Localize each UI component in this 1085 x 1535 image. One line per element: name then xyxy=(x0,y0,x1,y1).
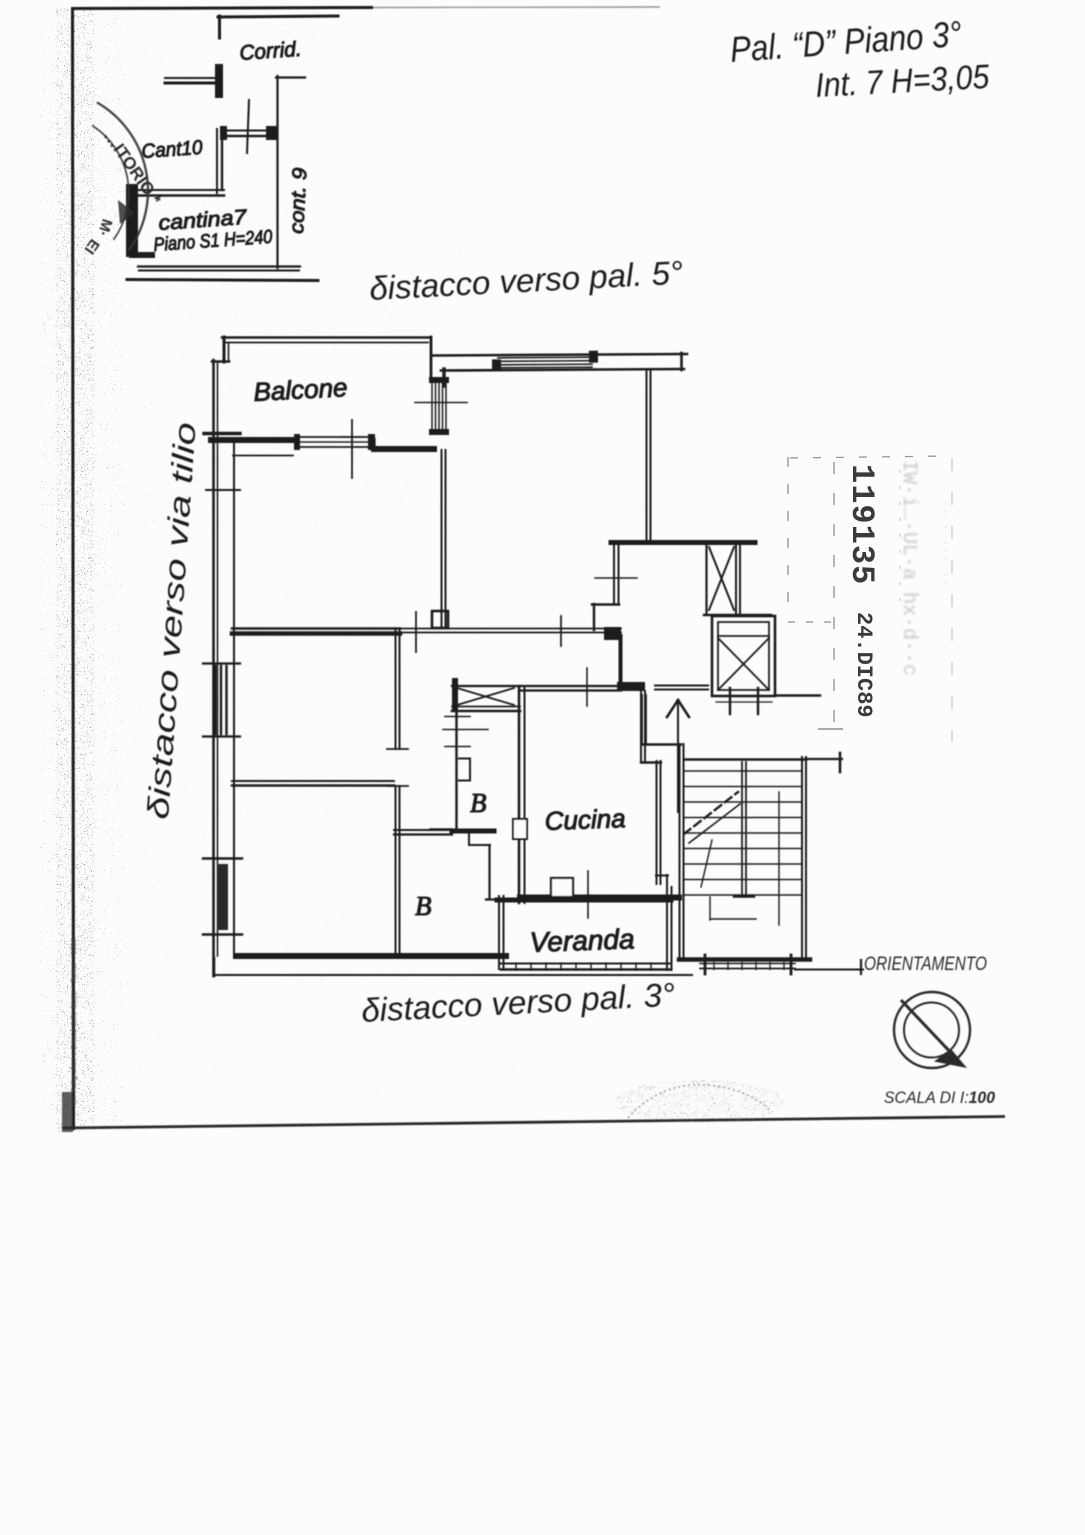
svg-text:B: B xyxy=(415,891,432,921)
svg-text:Ist. Poligrafico e Zecca dello: Ist. Poligrafico e Zecca dello Stato – R… xyxy=(69,938,78,1105)
svg-text:Cucina: Cucina xyxy=(544,803,626,836)
svg-text:Int. 7 H=3,05: Int. 7 H=3,05 xyxy=(814,58,990,105)
svg-text:119135: 119135 xyxy=(843,464,880,585)
svg-text:B: B xyxy=(470,788,487,818)
svg-text:IW·i…·UL·a hx·d··c: IW·i…·UL·a hx·d··c xyxy=(897,460,920,676)
svg-text:Cant10: Cant10 xyxy=(141,137,203,163)
svg-text:·· · ··· ··: ·· · ··· ·· xyxy=(938,500,953,586)
svg-text:cont. 9: cont. 9 xyxy=(286,167,311,234)
svg-text:Veranda: Veranda xyxy=(529,923,635,958)
svg-text:SCALA DI I:100: SCALA DI I:100 xyxy=(884,1088,995,1107)
svg-text:ORIENTAMENTO: ORIENTAMENTO xyxy=(864,954,987,975)
svg-text:Corrid.: Corrid. xyxy=(239,38,302,65)
svg-text:24.DIC89: 24.DIC89 xyxy=(851,612,876,718)
svg-text:Balcone: Balcone xyxy=(253,372,348,407)
